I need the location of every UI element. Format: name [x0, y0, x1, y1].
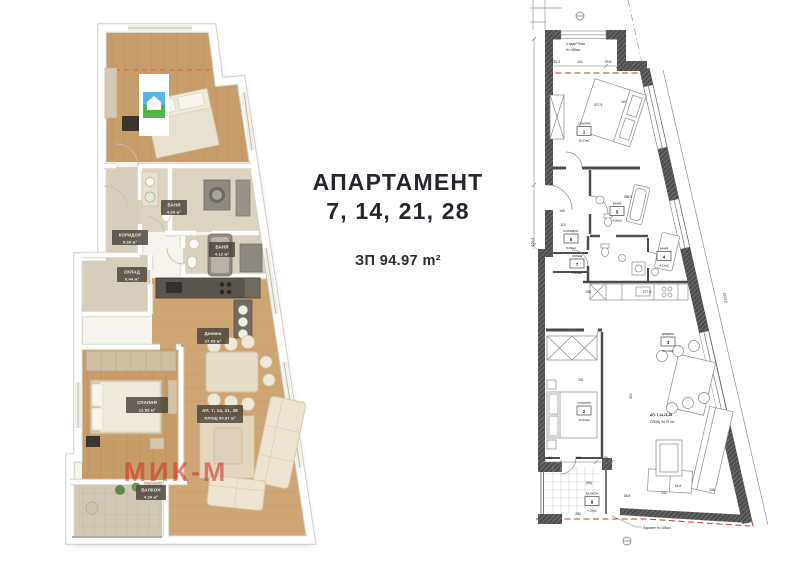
cad-label-banya5: БАНЯ 5 4.09м2: [610, 202, 624, 223]
apartment-numbers: 7, 14, 21, 28: [288, 197, 508, 226]
apartment-title: АПАРТАМЕНТ: [288, 168, 508, 197]
cad-wc-fixtures: [601, 244, 645, 275]
room-name: БАНЯ: [215, 245, 228, 250]
room-area: 12.53м2: [578, 418, 590, 422]
dresser-2: [168, 380, 177, 414]
room-name: ДНЕВНА: [662, 332, 676, 336]
cad-balcony: [545, 466, 600, 514]
apartment-built-area: ЗП 94.97 m²: [288, 253, 508, 269]
dim: 41.6: [675, 484, 682, 488]
room-name: Дневна: [205, 331, 222, 336]
dim: 253: [575, 512, 581, 516]
cad-label-balkon: БАЛКОН 8 4.20м2: [585, 492, 599, 513]
room-area: 4.09 м²: [167, 210, 182, 215]
dim: 162: [577, 60, 583, 64]
room-area: 4.20 м²: [144, 495, 159, 500]
room-name: БАНЯ: [660, 247, 669, 251]
dim: 50: [604, 456, 608, 460]
dresser: [105, 68, 117, 118]
parapet-note: Парапет Н=105см: [643, 526, 671, 530]
room-name: КОРИДОР: [119, 233, 142, 238]
dim: 251.5: [552, 60, 561, 64]
dim: 300: [629, 393, 633, 399]
label-apartment: АП. 7, 14, 21, 28 ПЛОЩ 94.97 м²: [197, 405, 243, 423]
room-name: СПАЛНЯ: [577, 122, 590, 126]
dim: 277.5: [643, 290, 652, 294]
watermark: МИК-М: [124, 457, 229, 487]
room-name: СКЛАД: [124, 270, 140, 275]
cad-bed-1: [578, 79, 646, 147]
room-name: БАЛКОН: [586, 492, 599, 496]
dim: 110: [560, 223, 566, 227]
dim: 327.5: [594, 103, 603, 107]
room-area: 12.53 м²: [139, 408, 156, 413]
room-area: 0.44м2: [572, 271, 582, 275]
room-area: 4.12м2: [659, 264, 669, 268]
dim: 138: [709, 488, 715, 492]
dim: (98): [586, 481, 592, 485]
label-dnevna: Дневна 27.03 м²: [197, 328, 229, 344]
cad-bedroom2: [547, 336, 597, 449]
title-block: АПАРТАМЕНТ 7, 14, 21, 28 ЗП 94.97 m²: [288, 168, 508, 269]
room-area: 4.09м2: [612, 219, 622, 223]
balcony-railing-cad: [541, 472, 544, 514]
room-area: 4.12 м²: [215, 252, 230, 257]
dim: 29.5: [605, 60, 612, 64]
room-name: БАНЯ: [167, 203, 180, 208]
room-area: 5.09м2: [566, 246, 576, 250]
render-floor-plan: КОРИДОР 5.09 м² СКЛАД 0.44 м² БАНЯ 4.09 …: [58, 14, 322, 554]
cad-bath5-fixtures: [596, 184, 650, 226]
cad-floor-plan: 251.5 162 29.5 327.5 107 140 110 288.5 2…: [525, 0, 800, 565]
cad-label-sklad: СКЛАД 7 0.44м2: [570, 254, 584, 275]
cad-apartment-label: АП. 7,14,21,28 ПЛОЩ 94.97 м2: [650, 413, 675, 424]
dim: 229.5: [531, 238, 535, 247]
room-area: 16.12м2: [578, 139, 590, 143]
cad-wardrobe-1: [550, 95, 564, 139]
dim: 44: [548, 456, 552, 460]
room-area: 0.44 м²: [125, 277, 140, 282]
dim: 140: [559, 209, 565, 213]
nightstand-2: [150, 438, 164, 449]
dim: 136: [585, 290, 591, 294]
apartment-number: АП. 7, 14, 21, 28: [202, 408, 238, 413]
cad-apartment-area: ПЛОЩ 94.97 м2: [650, 420, 675, 424]
stairs-note-2: Н=+85см: [566, 48, 581, 52]
stairs-note-1: 4 сдвр*75см: [566, 42, 586, 46]
cad-label-dnevna: ДНЕВНА 3 27.03м2: [661, 332, 675, 353]
cad-apartment-number: АП. 7,14,21,28: [650, 413, 672, 417]
room-name: БАНЯ: [613, 202, 622, 206]
room-name: СКЛАД: [572, 254, 583, 258]
room-name: БАЛКОН: [141, 488, 160, 493]
dim: 288.5: [624, 195, 633, 199]
room-area: 27.03м2: [662, 349, 674, 353]
nightstand: [86, 436, 100, 447]
dim: 107: [621, 100, 627, 104]
room-name: КОРИДОР: [563, 229, 578, 233]
room-area: 5.09 м²: [123, 240, 138, 245]
label-koridor: КОРИДОР 5.09 м²: [112, 230, 148, 245]
room-area: 27.03 м²: [205, 339, 222, 344]
label-sklad: СКЛАД 0.44 м²: [117, 267, 147, 282]
dim: 162: [575, 456, 581, 460]
cad-label-koridor: КОРИДОР 6 5.09м2: [563, 229, 578, 250]
label-banya5: БАНЯ 4.09 м²: [161, 200, 187, 215]
cad-kitchen: [590, 284, 688, 300]
dim: 261: [578, 378, 584, 382]
room-area: 4.20м2: [587, 509, 597, 513]
floor-plan-page: { "center_text": { "title_line1": "АПАРТ…: [0, 0, 800, 565]
dim: 242: [661, 491, 667, 495]
room-name: СПАЛНЯ: [577, 401, 590, 405]
dim-diagonal: 1923.5: [722, 292, 728, 303]
label-spalnya: СПАЛНЯ 12.53 м²: [126, 397, 168, 413]
developer-logo: [139, 74, 169, 136]
cad-label-spalnya1: СПАЛНЯ 1 16.12м2: [577, 122, 591, 143]
apartment-area: ПЛОЩ 94.97 м²: [204, 416, 236, 421]
label-balkon: БАЛКОН 4.20 м²: [136, 485, 166, 500]
dim: 35.5: [624, 494, 631, 498]
label-banya4: БАНЯ 4.12 м²: [209, 242, 235, 257]
room-name: СПАЛНЯ: [137, 400, 157, 405]
cad-label-spalnya2: СПАЛНЯ 2 12.53м2: [577, 401, 591, 422]
